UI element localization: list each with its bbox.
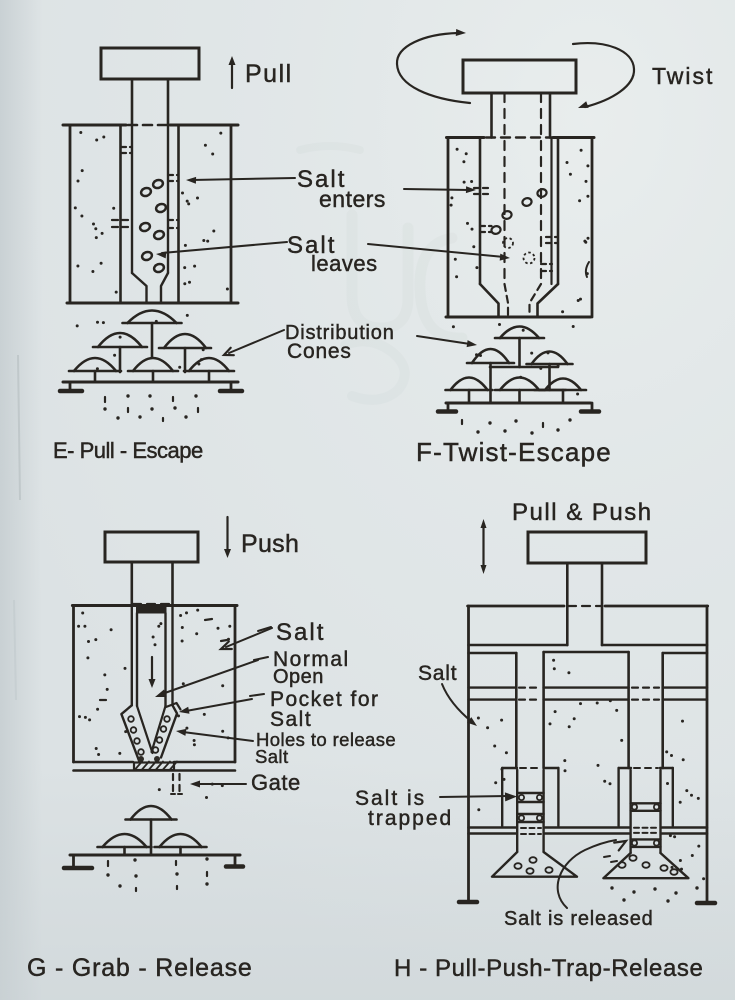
svg-text:Cones: Cones bbox=[287, 340, 352, 363]
svg-text:Pull & Push: Pull & Push bbox=[512, 499, 653, 526]
svg-text:E- Pull - Escape: E- Pull - Escape bbox=[53, 438, 203, 463]
svg-text:Open: Open bbox=[273, 666, 324, 688]
svg-text:Salt: Salt bbox=[418, 662, 457, 685]
svg-text:Salt: Salt bbox=[255, 746, 288, 767]
svg-text:Pull: Pull bbox=[245, 60, 293, 88]
svg-text:G - Grab - Release: G - Grab - Release bbox=[27, 954, 253, 982]
svg-text:Salt: Salt bbox=[270, 708, 312, 731]
svg-text:Salt is released: Salt is released bbox=[504, 908, 654, 930]
svg-text:H - Pull-Push-Trap-Release: H - Pull-Push-Trap-Release bbox=[394, 955, 703, 982]
svg-text:Push: Push bbox=[241, 530, 299, 558]
svg-text:enters: enters bbox=[319, 186, 386, 212]
svg-text:Salt: Salt bbox=[276, 619, 325, 646]
svg-text:trapped: trapped bbox=[368, 807, 453, 830]
svg-text:Twist: Twist bbox=[652, 63, 714, 89]
svg-text:F-Twist-Escape: F-Twist-Escape bbox=[416, 437, 612, 467]
svg-text:Gate: Gate bbox=[251, 770, 301, 795]
svg-text:leaves: leaves bbox=[311, 251, 378, 276]
